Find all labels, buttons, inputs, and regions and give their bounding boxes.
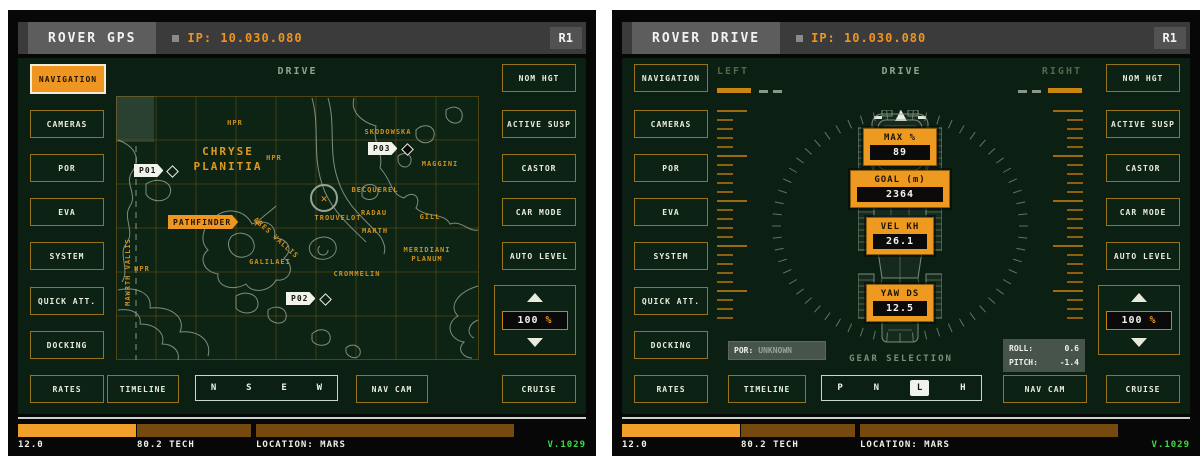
power-bar [622, 424, 740, 437]
map-label-radau: RADAU [361, 209, 387, 217]
nav-cam-button[interactable]: NAV CAM [356, 375, 428, 403]
waypoint-tag-p01[interactable]: P01 [134, 164, 163, 177]
cruise-button[interactable]: CRUISE [502, 375, 576, 403]
location-bar [860, 424, 1118, 437]
gps-title-tab: ROVER GPS [28, 22, 156, 54]
gps-ip: IP: 10.030.080 [172, 31, 302, 45]
sidebar-item-eva[interactable]: EVA [634, 198, 708, 226]
map-label-hpr: HPR [266, 154, 282, 162]
tech-value: 80.2 TECH [137, 440, 195, 450]
right-track-header: RIGHT [1022, 66, 1082, 77]
sidebar-item-por[interactable]: POR [634, 154, 708, 182]
right-track-dash-icon [1018, 90, 1027, 93]
sidebar-item-cameras[interactable]: CAMERAS [634, 110, 708, 138]
yaw-readout: YAW DS 12.5 [866, 284, 934, 322]
timeline-button[interactable]: TIMELINE [107, 375, 179, 403]
selected-target-icon[interactable]: ✕ [310, 184, 338, 212]
waypoint-tag-p02[interactable]: P02 [286, 292, 315, 305]
mars-map[interactable]: CHRYSE PLANITIA HPR HPR HPR SKODOWSKA MA… [116, 96, 479, 360]
gps-drive-header: DRIVE [116, 66, 479, 77]
castor-button[interactable]: CASTOR [502, 154, 576, 182]
map-label-mawrth-vallis: MAWRTH VALLIS [124, 238, 132, 306]
drive-ip: IP: 10.030.080 [796, 31, 926, 45]
waypoint-tag-p03[interactable]: P03 [368, 142, 397, 155]
car-mode-button[interactable]: CAR MODE [502, 198, 576, 226]
cruise-button[interactable]: CRUISE [1106, 375, 1180, 403]
location-value: LOCATION: MARS [860, 440, 950, 450]
version-label: V.1029 [1151, 440, 1190, 450]
timeline-button[interactable]: TIMELINE [728, 375, 806, 403]
map-label-hpr: HPR [227, 119, 243, 127]
map-label-crommelin: CROMMELIN [334, 270, 381, 278]
sidebar-item-docking[interactable]: DOCKING [30, 331, 104, 359]
rover-dashboard: ROVER GPS IP: 10.030.080 R1 NAVIGATION C… [0, 0, 1200, 466]
left-track-dash-icon [773, 90, 782, 93]
compass-e[interactable]: E [281, 383, 286, 393]
pathfinder-x-icon: ✕ [254, 217, 261, 230]
power-value: 12.0 [622, 440, 648, 450]
tech-bar [137, 424, 251, 437]
drive-rover-badge: R1 [1154, 27, 1186, 49]
map-label-skodowska: SKODOWSKA [365, 128, 412, 136]
gps-ip-label: IP: 10.030.080 [187, 31, 302, 45]
sidebar-item-quick-att[interactable]: QUICK ATT. [30, 287, 104, 315]
status-divider [622, 417, 1190, 419]
speed-spinner: 100 % [1098, 285, 1180, 355]
sidebar-item-cameras[interactable]: CAMERAS [30, 110, 104, 138]
power-value: 12.0 [18, 440, 44, 450]
left-track-slider-handle[interactable] [717, 88, 751, 93]
velocity-readout: VEL KH 26.1 [866, 217, 934, 255]
gps-header: ROVER GPS IP: 10.030.080 R1 [18, 22, 586, 54]
nav-cam-button[interactable]: NAV CAM [1003, 375, 1087, 403]
gps-rover-badge: R1 [550, 27, 582, 49]
map-label-galilaei: GALILAEI [249, 258, 291, 266]
attitude-readout: ROLL:0.6 PITCH:-1.4 [1003, 339, 1085, 372]
status-divider [18, 417, 586, 419]
car-mode-button[interactable]: CAR MODE [1106, 198, 1180, 226]
map-label-hpr: HPR [134, 265, 150, 273]
map-label-trouvelot: TROUVELOT [315, 214, 362, 222]
castor-button[interactable]: CASTOR [1106, 154, 1180, 182]
speed-spinner: 100 % [494, 285, 576, 355]
speed-value: 100 % [1106, 311, 1172, 330]
tech-value: 80.2 TECH [741, 440, 799, 450]
auto-level-button[interactable]: AUTO LEVEL [502, 242, 576, 270]
por-status: POR: UNKNOWN [728, 341, 826, 360]
status-square-icon [796, 35, 803, 42]
gear-selector: P N L H [821, 375, 982, 401]
map-region-title: CHRYSE PLANITIA [194, 145, 263, 175]
compass-selector: N S E W [195, 375, 338, 401]
sidebar-item-quick-att[interactable]: QUICK ATT. [634, 287, 708, 315]
map-label-maggini: MAGGINI [422, 160, 459, 168]
sidebar-item-navigation[interactable]: NAVIGATION [30, 64, 106, 94]
waypoint-tag-pathfinder[interactable]: PATHFINDER [168, 215, 238, 229]
map-label-marth: MARTH [362, 227, 388, 235]
panel-rover-gps: ROVER GPS IP: 10.030.080 R1 NAVIGATION C… [8, 10, 596, 456]
status-square-icon [172, 35, 179, 42]
active-susp-button[interactable]: ACTIVE SUSP [502, 110, 576, 138]
map-label-gill: GILL [420, 213, 441, 221]
location-value: LOCATION: MARS [256, 440, 346, 450]
sidebar-item-por[interactable]: POR [30, 154, 104, 182]
sidebar-item-rates[interactable]: RATES [30, 375, 104, 403]
drive-header: ROVER DRIVE IP: 10.030.080 R1 [622, 22, 1190, 54]
map-label-meridiani: MERIDIANI [404, 246, 451, 254]
nom-hgt-button[interactable]: NOM HGT [1106, 64, 1180, 92]
right-track-gauge [1051, 98, 1083, 324]
sidebar-item-navigation[interactable]: NAVIGATION [634, 64, 708, 92]
right-track-dash-icon [1032, 90, 1041, 93]
sidebar-item-eva[interactable]: EVA [30, 198, 104, 226]
sidebar-item-system[interactable]: SYSTEM [634, 242, 708, 270]
gps-content: NAVIGATION CAMERAS POR EVA SYSTEM QUICK … [18, 58, 586, 414]
increase-arrow-icon[interactable] [1131, 293, 1147, 302]
goal-distance-readout: GOAL (m) 2364 [850, 170, 950, 208]
map-label-becquerel: BECQUEREL [352, 186, 399, 194]
decrease-arrow-icon[interactable] [1131, 338, 1147, 347]
drive-title-tab: ROVER DRIVE [632, 22, 780, 54]
panel-rover-drive: ROVER DRIVE IP: 10.030.080 R1 NAVIGATION… [612, 10, 1200, 456]
version-label: V.1029 [547, 440, 586, 450]
max-percent-readout: MAX % 89 [863, 128, 937, 166]
tech-bar [741, 424, 855, 437]
gear-l-active[interactable]: L [910, 380, 929, 396]
speed-value: 100 % [502, 311, 568, 330]
right-track-slider-handle[interactable] [1048, 88, 1082, 93]
compass-s[interactable]: S [246, 383, 251, 393]
left-track-gauge [717, 98, 749, 324]
increase-arrow-icon[interactable] [527, 293, 543, 302]
location-bar [256, 424, 514, 437]
sidebar-item-docking[interactable]: DOCKING [634, 331, 708, 359]
drive-content: NAVIGATION CAMERAS POR EVA SYSTEM QUICK … [622, 58, 1190, 414]
gear-h[interactable]: H [960, 383, 965, 393]
power-bar [18, 424, 136, 437]
compass-n[interactable]: N [211, 383, 216, 393]
left-track-dash-icon [759, 90, 768, 93]
active-susp-button[interactable]: ACTIVE SUSP [1106, 110, 1180, 138]
nom-hgt-button[interactable]: NOM HGT [502, 64, 576, 92]
gear-n[interactable]: N [874, 383, 879, 393]
decrease-arrow-icon[interactable] [527, 338, 543, 347]
gear-selection-title: GEAR SELECTION [818, 354, 984, 364]
map-label-meridiani-2: PLANUM [411, 255, 442, 263]
sidebar-item-system[interactable]: SYSTEM [30, 242, 104, 270]
compass-w[interactable]: W [317, 383, 322, 393]
sidebar-item-rates[interactable]: RATES [634, 375, 708, 403]
gear-p[interactable]: P [837, 383, 842, 393]
auto-level-button[interactable]: AUTO LEVEL [1106, 242, 1180, 270]
drive-ip-label: IP: 10.030.080 [811, 31, 926, 45]
